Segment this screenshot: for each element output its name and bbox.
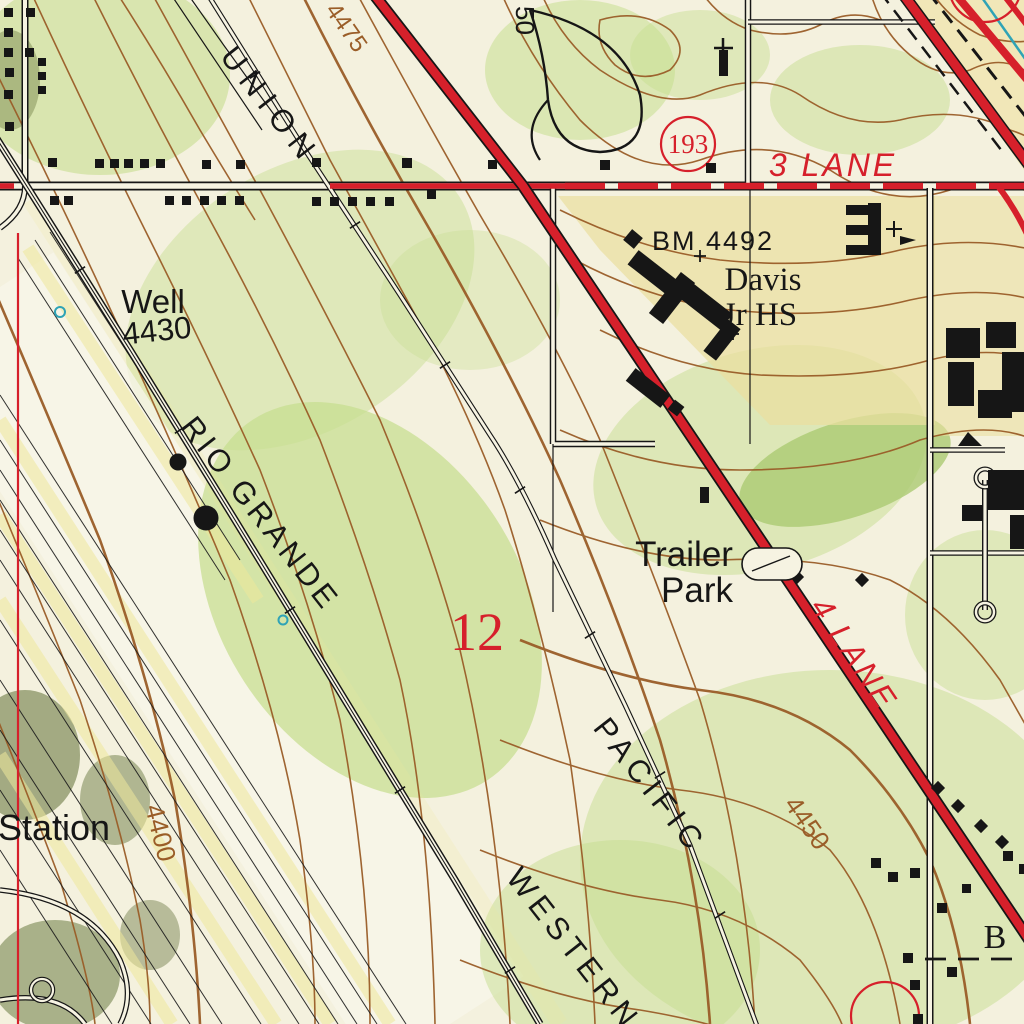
route-shield-number: 193 [668, 129, 709, 159]
trailer-park-label-line2: Park [661, 571, 733, 610]
topo-map-canvas[interactable]: UNION RIO GRANDE PACIFIC WESTERN Well 44… [0, 0, 1024, 1024]
benchmark-label: BM 4492 [652, 226, 774, 256]
tower-icon [719, 50, 728, 76]
edge-label-b: B [984, 919, 1007, 956]
well-elevation-label: 4430 [121, 310, 193, 352]
trailer-park-label-line1: Trailer [635, 535, 733, 574]
road-class-3lane: 3 LANE [769, 147, 897, 183]
topo-map-svg: UNION RIO GRANDE PACIFIC WESTERN Well 44… [0, 0, 1024, 1024]
edge-street-label-50: 50 [510, 6, 540, 35]
school-label-line2: Jr HS [723, 297, 797, 333]
section-number-label: 12 [450, 602, 504, 662]
water-tank-dot-icon [170, 454, 187, 471]
station-label: Station [0, 807, 110, 848]
school-label-line1: Davis [725, 262, 802, 298]
water-tank-dot-icon [194, 506, 219, 531]
trailer-park-loop [742, 548, 802, 580]
